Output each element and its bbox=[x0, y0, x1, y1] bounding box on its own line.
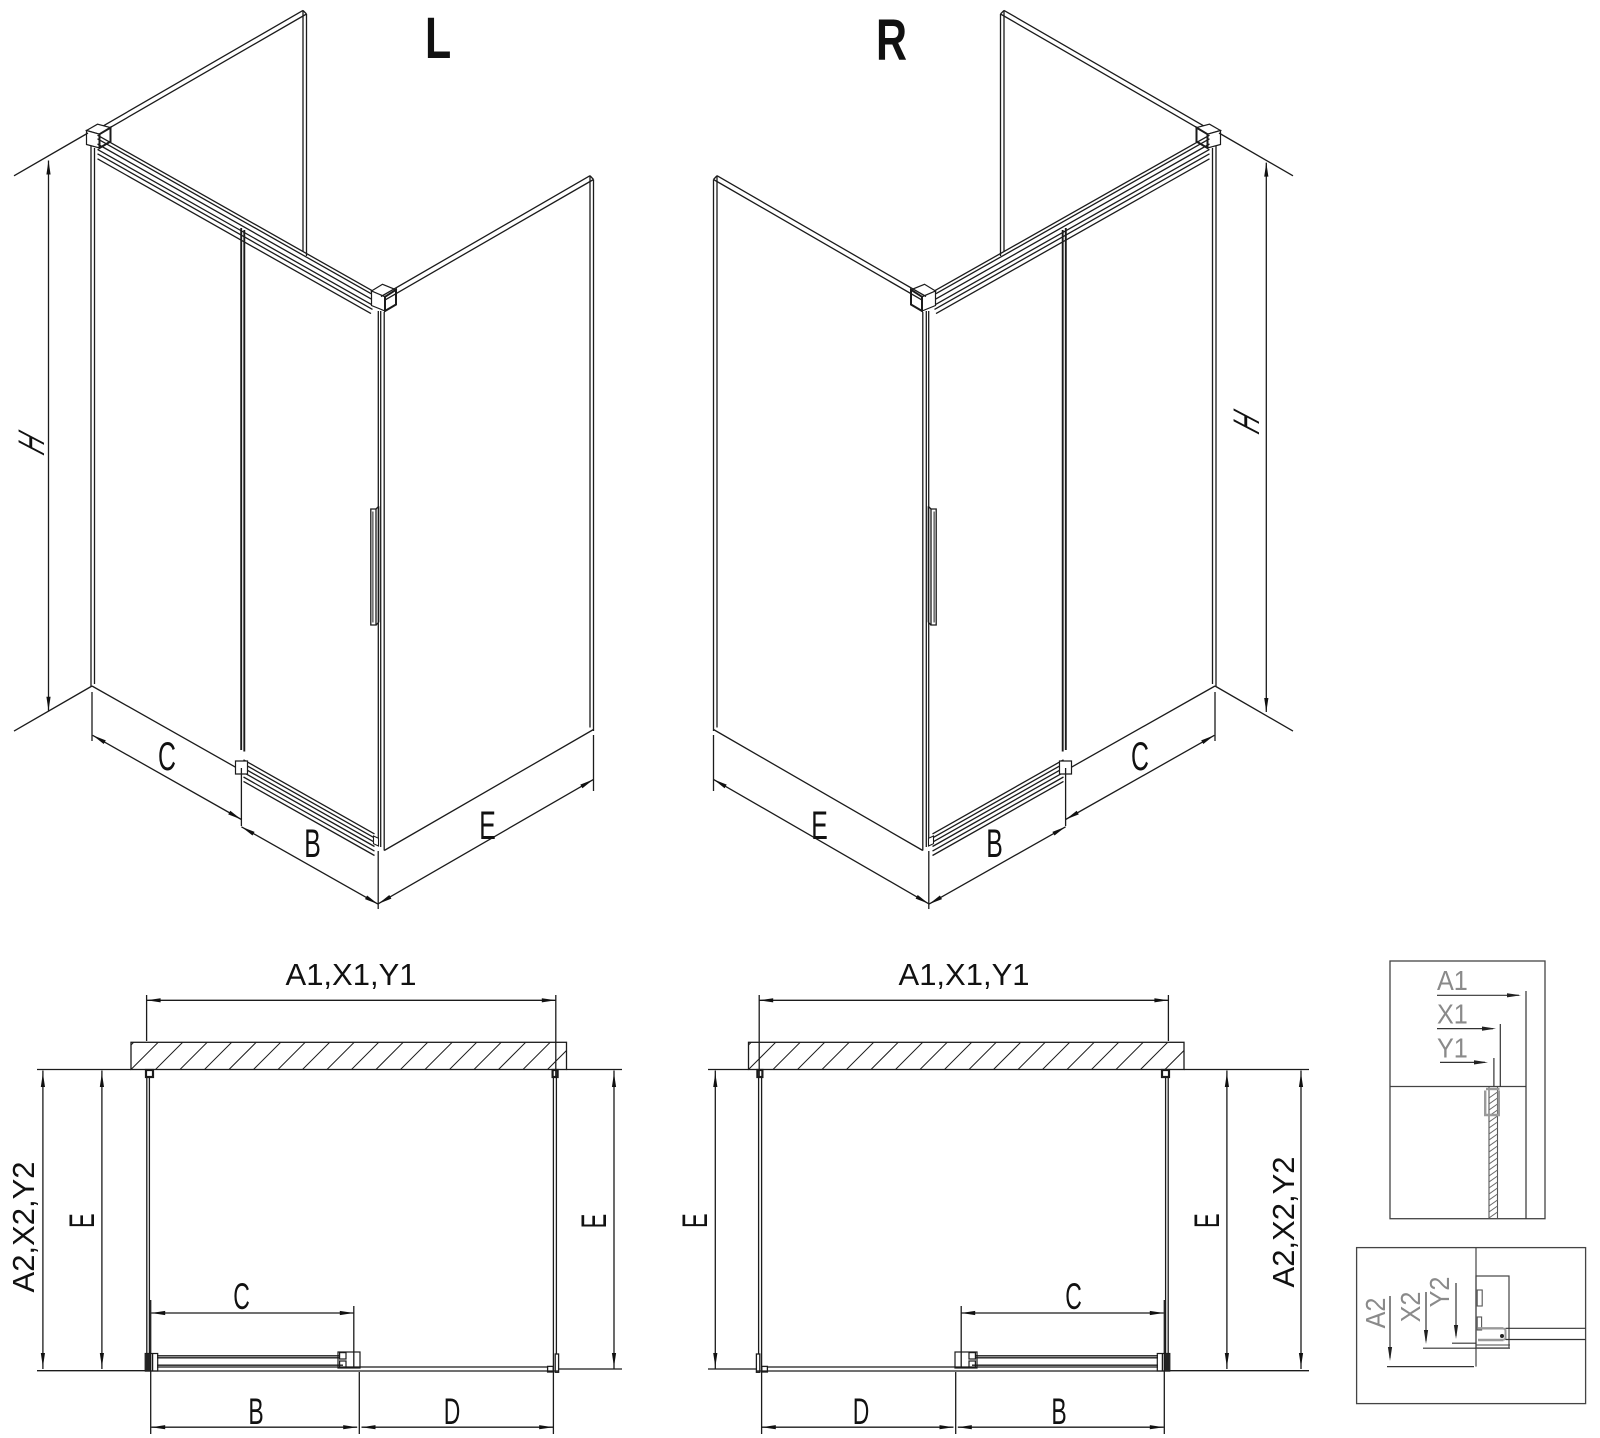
svg-text:Y1: Y1 bbox=[1437, 1032, 1468, 1064]
svg-text:D: D bbox=[853, 1390, 870, 1432]
svg-text:A2: A2 bbox=[1360, 1298, 1392, 1329]
svg-text:E: E bbox=[576, 1214, 614, 1228]
svg-text:R: R bbox=[876, 8, 907, 73]
svg-text:X2: X2 bbox=[1395, 1292, 1427, 1323]
svg-text:B: B bbox=[304, 822, 321, 866]
svg-text:A1,X1,Y1: A1,X1,Y1 bbox=[286, 957, 417, 992]
svg-text:E: E bbox=[479, 804, 496, 848]
svg-text:A2,X2,Y2: A2,X2,Y2 bbox=[1266, 1157, 1301, 1288]
svg-text:A1: A1 bbox=[1437, 965, 1468, 997]
svg-text:D: D bbox=[444, 1390, 461, 1432]
svg-text:C: C bbox=[1131, 735, 1149, 779]
svg-text:A2,X2,Y2: A2,X2,Y2 bbox=[6, 1162, 41, 1293]
svg-text:E: E bbox=[811, 804, 828, 848]
svg-text:C: C bbox=[158, 735, 176, 779]
svg-text:X1: X1 bbox=[1437, 998, 1468, 1030]
svg-text:E: E bbox=[64, 1213, 102, 1227]
svg-text:C: C bbox=[233, 1275, 250, 1317]
svg-text:B: B bbox=[986, 822, 1003, 866]
svg-text:L: L bbox=[425, 6, 451, 71]
svg-text:E: E bbox=[677, 1213, 715, 1227]
svg-text:A1,X1,Y1: A1,X1,Y1 bbox=[899, 957, 1030, 992]
svg-text:E: E bbox=[1189, 1213, 1227, 1227]
svg-text:Y2: Y2 bbox=[1424, 1277, 1456, 1308]
svg-text:C: C bbox=[1065, 1275, 1082, 1317]
svg-text:B: B bbox=[248, 1390, 263, 1432]
svg-text:B: B bbox=[1051, 1390, 1066, 1432]
